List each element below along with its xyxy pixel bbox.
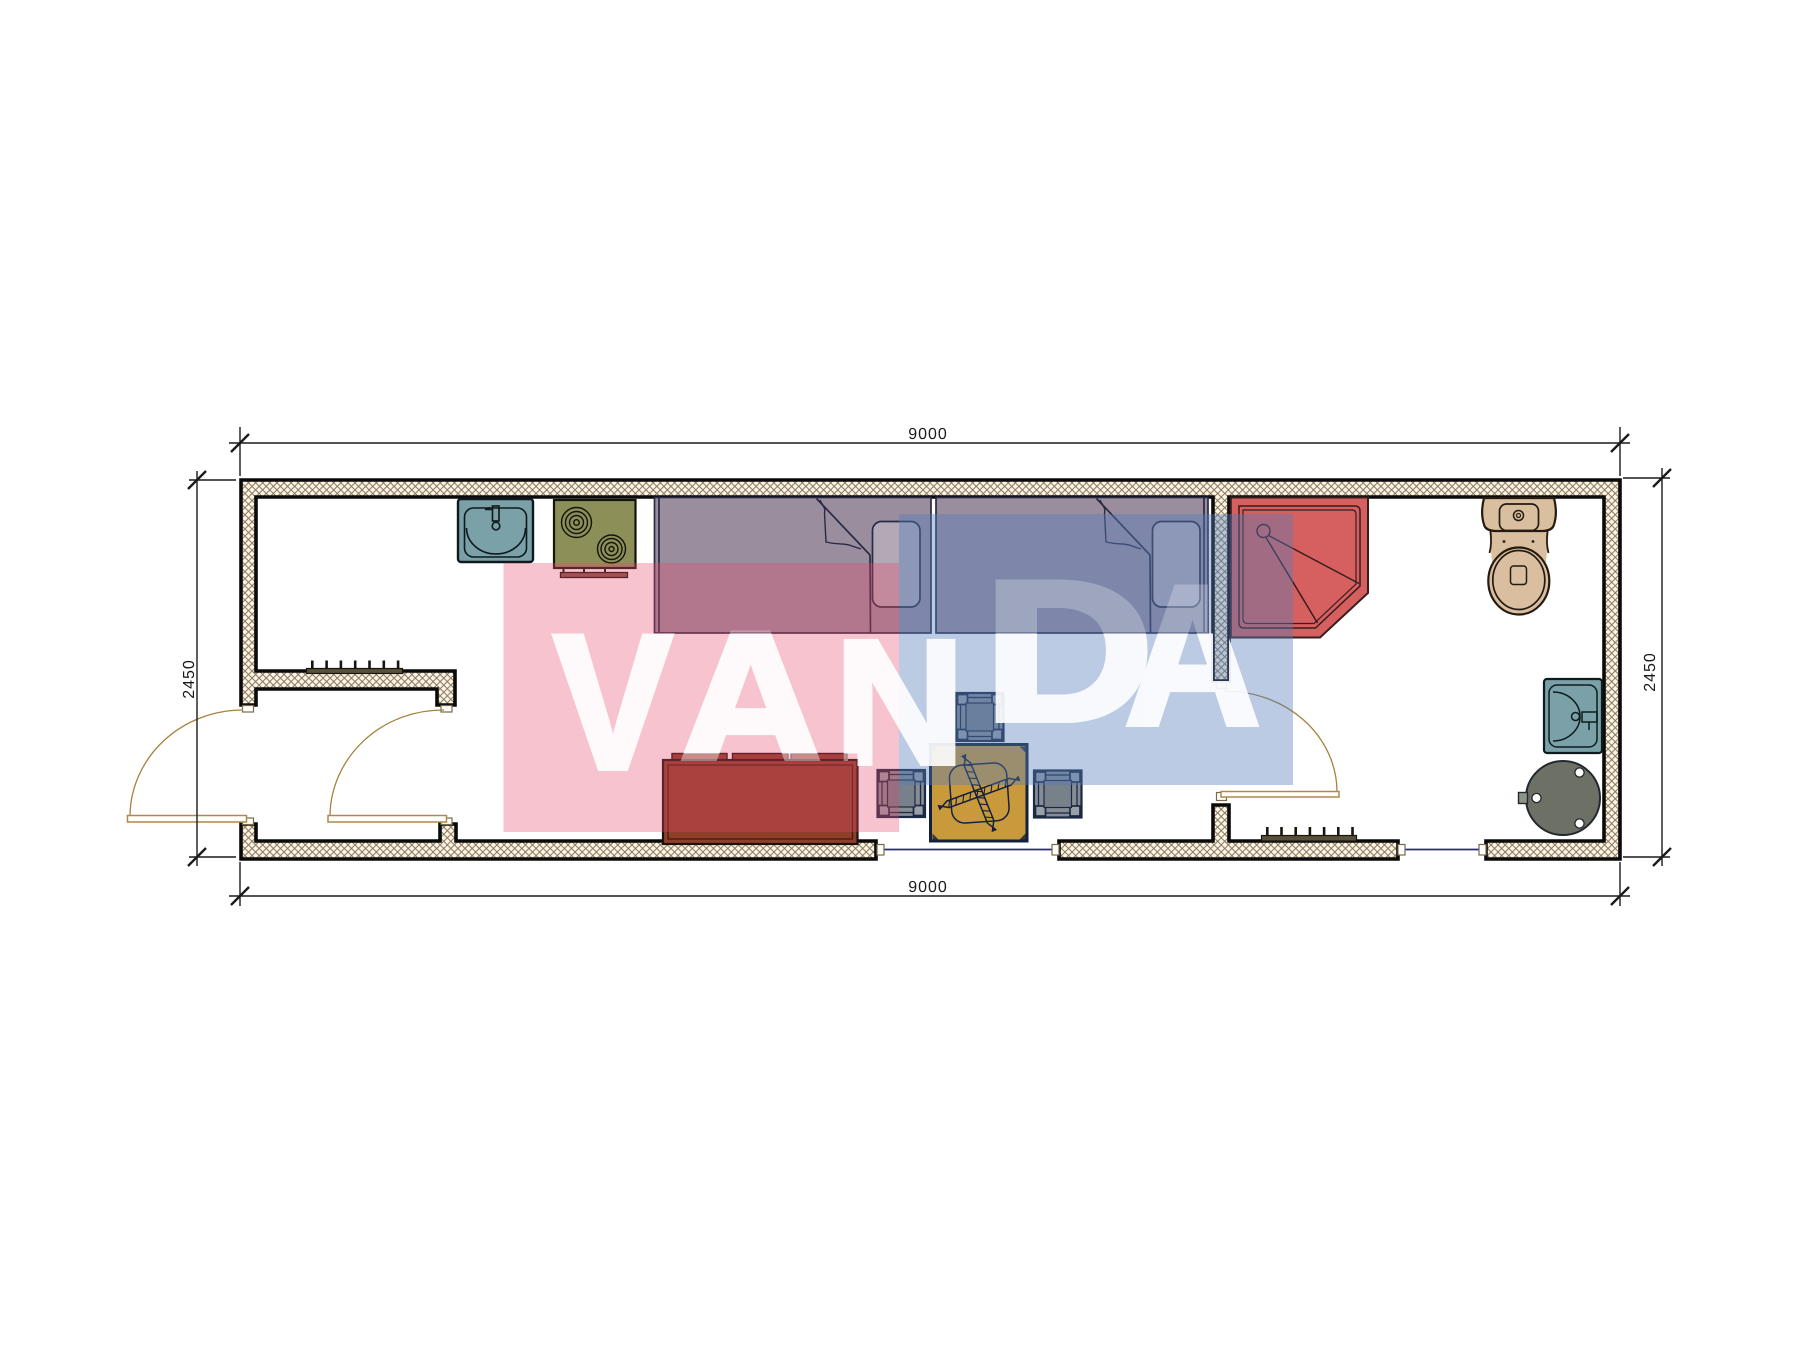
svg-text:9000: 9000	[908, 879, 948, 896]
svg-text:2450: 2450	[181, 659, 198, 699]
svg-text:9000: 9000	[908, 426, 948, 443]
svg-text:2450: 2450	[1642, 652, 1659, 692]
